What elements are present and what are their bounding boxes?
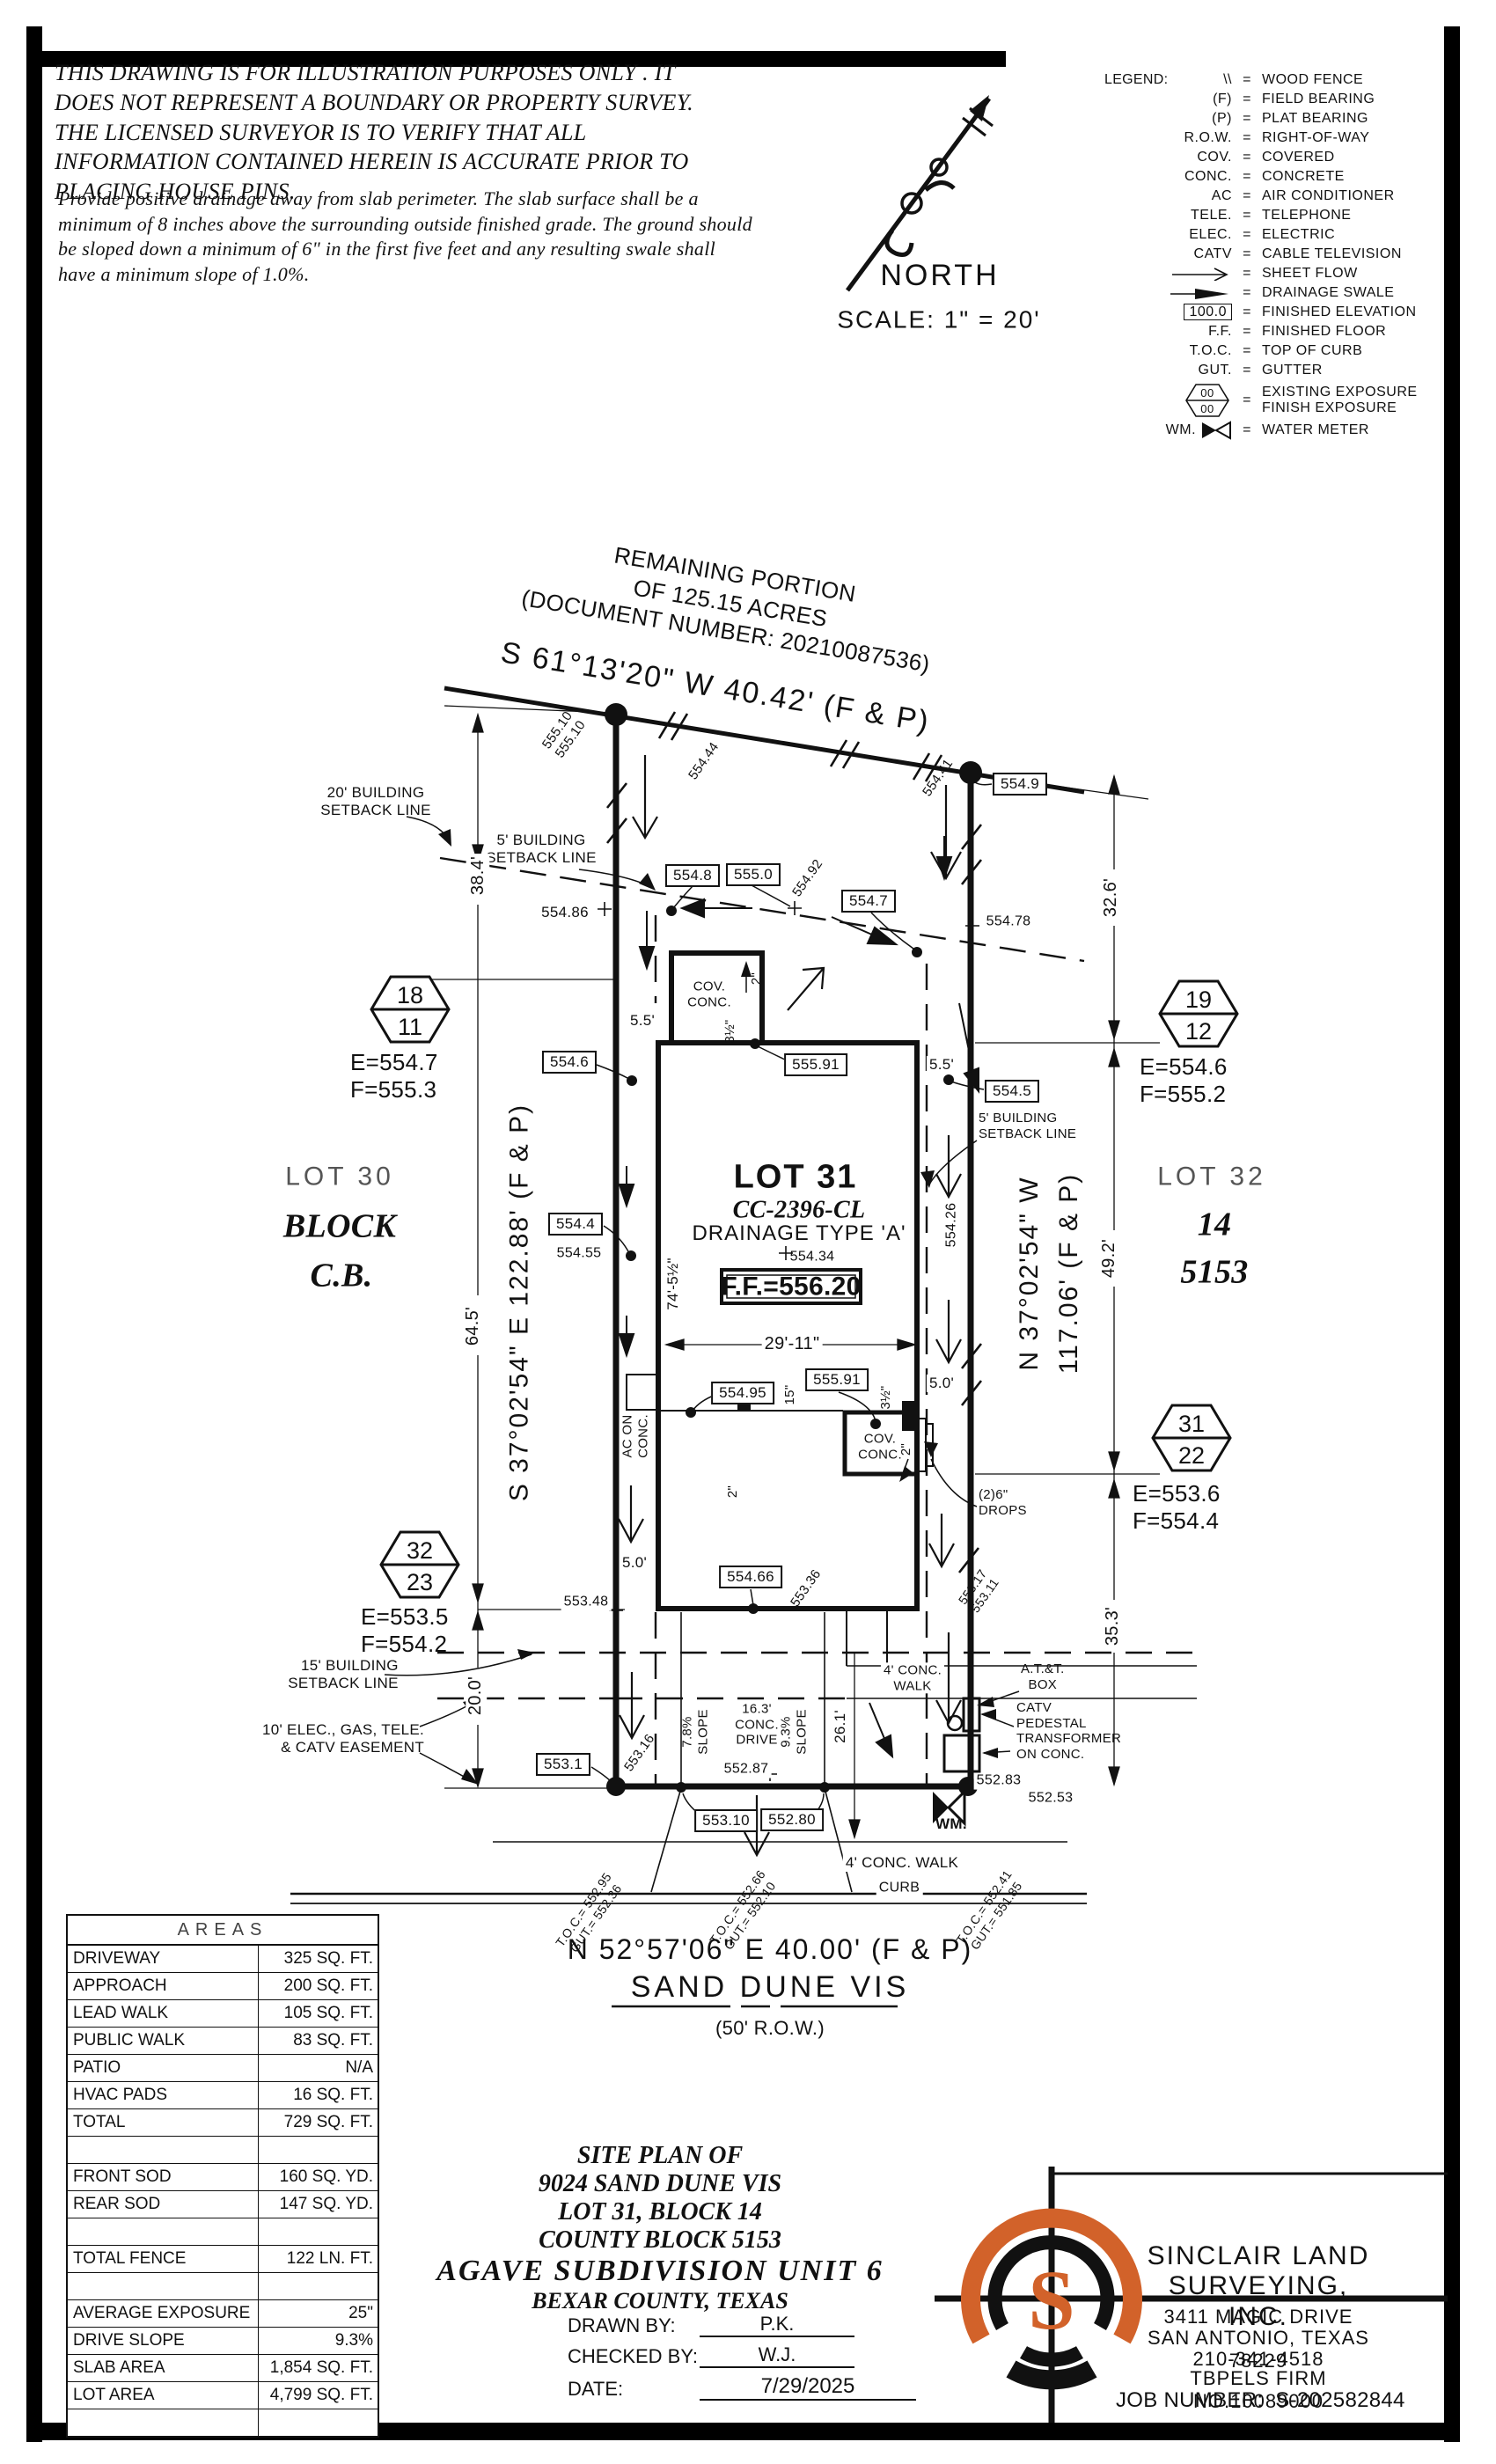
hexagon-19-12: 1912 xyxy=(1160,981,1237,1046)
row-label: FRONT SOD xyxy=(68,2164,259,2190)
dim-64-5: 64.5' xyxy=(463,1304,484,1348)
row-label xyxy=(68,2137,259,2163)
title-line: 9024 SAND DUNE VIS xyxy=(396,2172,924,2196)
finished-elev-552-80: 552.80 xyxy=(760,1808,824,1831)
hex-bottom: 11 xyxy=(398,1014,422,1040)
table-row: AVERAGE EXPOSURE25" xyxy=(68,2300,378,2328)
hex-bottom: 22 xyxy=(1178,1442,1205,1469)
dim-32-6: 32.6' xyxy=(1101,878,1122,917)
setback-15ft-label: 15' BUILDING SETBACK LINE xyxy=(288,1657,398,1692)
curb-label: CURB xyxy=(876,1881,923,1897)
block-14-label: 14 xyxy=(1198,1206,1232,1245)
row-label xyxy=(68,2273,259,2299)
water-meter-label: WM. xyxy=(935,1815,967,1833)
table-row: LEAD WALK105 SQ. FT. xyxy=(68,2000,378,2028)
bearing-street-line: N 52°57'06" E 40.00' (F & P) xyxy=(568,1933,973,1967)
hex-top: 32 xyxy=(407,1537,433,1564)
row-label: HVAC PADS xyxy=(68,2082,259,2108)
row-value xyxy=(259,2137,378,2163)
hex-top: 19 xyxy=(1185,986,1212,1013)
row-label: DRIVEWAY xyxy=(68,1946,259,1972)
areas-title: AREAS xyxy=(68,1916,378,1946)
table-row: TOTAL FENCE122 LN. FT. xyxy=(68,2246,378,2273)
row-label: APPROACH xyxy=(68,1973,259,1999)
row-value xyxy=(259,2409,378,2436)
date-value: 7/29/2025 xyxy=(700,2374,916,2401)
row-value: 1,854 SQ. FT. xyxy=(259,2355,378,2381)
hex-18-ef-values: E=554.7 F=555.3 xyxy=(350,1049,438,1103)
finished-elev-553-1: 553.1 xyxy=(536,1753,590,1776)
row-value xyxy=(259,2273,378,2299)
hex-19-ef-values: E=554.6 F=555.2 xyxy=(1140,1053,1228,1107)
finished-elev-553-10: 553.10 xyxy=(694,1809,758,1832)
finished-elev-555-91-lower: 555.91 xyxy=(805,1368,869,1391)
table-row: DRIVEWAY325 SQ. FT. xyxy=(68,1946,378,1973)
table-row xyxy=(68,2137,378,2164)
title-line: SITE PLAN OF xyxy=(396,2144,924,2168)
table-row: PUBLIC WALK83 SQ. FT. xyxy=(68,2028,378,2055)
dim-26-1: 26.1' xyxy=(832,1710,849,1743)
table-row: REAR SOD147 SQ. YD. xyxy=(68,2191,378,2218)
title-line: LOT 31, BLOCK 14 xyxy=(396,2200,924,2225)
hex-bottom: 23 xyxy=(407,1569,433,1595)
areas-table: AREAS DRIVEWAY325 SQ. FT. APPROACH200 SQ… xyxy=(66,1914,379,2438)
hex-top: 18 xyxy=(397,982,423,1008)
lot-30-label: LOT 30 xyxy=(285,1161,394,1192)
hex-32-ef-values: E=553.5 F=554.2 xyxy=(361,1603,449,1657)
drainage-type-label: DRAINAGE TYPE 'A' xyxy=(692,1221,906,1246)
drawn-by-value: P.K. xyxy=(700,2313,854,2337)
north-arrow-icon xyxy=(847,95,993,290)
job-number-label: JOB NUMBER: xyxy=(1116,2388,1263,2412)
att-box-label: A.T.&T. BOX xyxy=(1021,1661,1065,1692)
dim-5-5-left: 5.5' xyxy=(627,1012,657,1030)
bearing-west-line: N 37°02'54" W 117.06' (F & P) xyxy=(1009,1173,1089,1375)
row-value: 9.3% xyxy=(259,2328,378,2354)
spot-554-86: 554.86 xyxy=(539,904,591,921)
drawn-by-label: DRAWN BY: xyxy=(568,2314,700,2337)
row-label xyxy=(68,2218,259,2245)
row-value: 83 SQ. FT. xyxy=(259,2028,378,2054)
table-row: APPROACH200 SQ. FT. xyxy=(68,1973,378,2000)
table-row: TOTAL729 SQ. FT. xyxy=(68,2109,378,2137)
spot-554-78: 554.78 xyxy=(984,914,1034,931)
dim-5-0-right: 5.0' xyxy=(927,1375,957,1392)
finished-elev-555-0: 555.0 xyxy=(726,863,781,886)
dim-20-0: 20.0' xyxy=(466,1674,487,1718)
table-row xyxy=(68,2273,378,2300)
firm-address1: 3411 MAGIC DRIVE xyxy=(1144,2306,1373,2328)
block-label: BLOCK xyxy=(283,1207,396,1247)
leader-lines xyxy=(385,778,1019,1815)
drive-label: 16.3' CONC. DRIVE xyxy=(732,1701,781,1748)
cov-conc-rear-label: COV. CONC. xyxy=(855,1431,905,1462)
finished-elev-555-91-upper: 555.91 xyxy=(784,1053,847,1076)
row-value: 729 SQ. FT. xyxy=(259,2109,378,2136)
plan-code-label: CC-2396-CL xyxy=(733,1195,866,1224)
dim-74-5half: 74'-5½" xyxy=(664,1258,682,1310)
dim-29-11: 29'-11" xyxy=(762,1334,823,1355)
county-block-5153-label: 5153 xyxy=(1180,1253,1248,1293)
dim-49-2: 49.2' xyxy=(1099,1236,1120,1280)
dim-5-5-right: 5.5' xyxy=(927,1056,957,1074)
dim-2in-porch: 2" xyxy=(749,972,765,985)
walk-inner-label: 4' CONC. WALK xyxy=(881,1662,944,1693)
row-value: 16 SQ. FT. xyxy=(259,2082,378,2108)
row-label: TOTAL xyxy=(68,2109,259,2136)
finished-elev-554-7: 554.7 xyxy=(841,890,896,913)
finished-elev-554-95: 554.95 xyxy=(711,1382,774,1404)
dim-3-5in-left: 3½" xyxy=(722,1019,738,1043)
row-value: 200 SQ. FT. xyxy=(259,1973,378,1999)
title-block: SITE PLAN OF 9024 SAND DUNE VIS LOT 31, … xyxy=(396,2140,924,2316)
bearing-east-line: S 37°02'54" E 122.88' (F & P) xyxy=(503,1104,534,1501)
row-value: 25" xyxy=(259,2300,378,2327)
logo-s-letter: S xyxy=(1028,2253,1074,2347)
hexagon-32-23: 3223 xyxy=(381,1532,458,1597)
slope-left-label: 7.8% SLOPE xyxy=(679,1709,710,1755)
spot-552-87: 552.87 xyxy=(722,1762,772,1778)
setback-20ft-label: 20' BUILDING SETBACK LINE xyxy=(320,784,430,819)
finished-floor-label: F.F.=556.20 xyxy=(721,1271,861,1302)
finished-elev-554-4: 554.4 xyxy=(548,1213,603,1236)
setback-5ft-right-label: 5' BUILDING SETBACK LINE xyxy=(979,1111,1076,1141)
setback-5ft-left-label: 5' BUILDING SETBACK LINE xyxy=(486,832,596,867)
hexagon-18-11: 1811 xyxy=(371,977,449,1042)
title-county-line: BEXAR COUNTY, TEXAS xyxy=(396,2290,924,2313)
row-label: DRIVE SLOPE xyxy=(68,2328,259,2354)
row-label: PATIO xyxy=(68,2055,259,2081)
finished-elev-554-66: 554.66 xyxy=(719,1566,782,1588)
spot-552-83: 552.83 xyxy=(974,1773,1024,1790)
spot-554-55: 554.55 xyxy=(557,1246,602,1263)
hex-bottom: 12 xyxy=(1185,1018,1212,1045)
dim-15in: 15" xyxy=(782,1385,798,1405)
walk-street-label: 4' CONC. WALK xyxy=(843,1854,961,1872)
title-subdivision-line: AGAVE SUBDIVISION UNIT 6 xyxy=(396,2256,924,2286)
easement-label: 10' ELEC., GAS, TELE. & CATV EASEMENT xyxy=(262,1721,424,1756)
dim-2in-yard: 2" xyxy=(725,1485,741,1498)
row-label: LEAD WALK xyxy=(68,2000,259,2027)
dim-3-5in-right: 3½" xyxy=(878,1385,894,1409)
row-value: 4,799 SQ. FT. xyxy=(259,2382,378,2409)
finished-elev-554-8: 554.8 xyxy=(665,864,720,887)
row-label: AVERAGE EXPOSURE xyxy=(68,2300,259,2327)
row-label: REAR SOD xyxy=(68,2191,259,2218)
ac-on-conc-label: AC ON CONC. xyxy=(620,1414,650,1458)
row-label: PUBLIC WALK xyxy=(68,2028,259,2054)
row-label: TOTAL FENCE xyxy=(68,2246,259,2272)
spot-552-53: 552.53 xyxy=(1026,1791,1076,1808)
table-row: SLAB AREA1,854 SQ. FT. xyxy=(68,2355,378,2382)
row-label: LOT AREA xyxy=(68,2382,259,2409)
finished-elev-554-6: 554.6 xyxy=(542,1051,597,1074)
dim-35-3: 35.3' xyxy=(1103,1604,1124,1648)
table-row: HVAC PADS16 SQ. FT. xyxy=(68,2082,378,2109)
street-name-label: SAND DUNE VIS xyxy=(631,1969,910,2005)
table-row xyxy=(68,2409,378,2436)
date-label: DATE: xyxy=(568,2378,700,2401)
row-value: N/A xyxy=(259,2055,378,2081)
row-value: 122 LN. FT. xyxy=(259,2246,378,2272)
checked-by-label: CHECKED BY: xyxy=(568,2345,700,2368)
job-number-value: S-202582844 xyxy=(1275,2388,1404,2412)
table-row: FRONT SOD160 SQ. YD. xyxy=(68,2164,378,2191)
row-label xyxy=(68,2409,259,2436)
row-label: SLAB AREA xyxy=(68,2355,259,2381)
row-value: 147 SQ. YD. xyxy=(259,2191,378,2218)
row-value: 105 SQ. FT. xyxy=(259,2000,378,2027)
county-block-cb-label: C.B. xyxy=(311,1257,373,1296)
slope-right-label: 9.3% SLOPE xyxy=(778,1709,809,1755)
hex-top: 31 xyxy=(1178,1411,1205,1437)
hexagon-31-22: 3122 xyxy=(1153,1405,1230,1470)
table-row: DRIVE SLOPE9.3% xyxy=(68,2328,378,2355)
dim-2in-rear: 2" xyxy=(898,1443,914,1456)
signature-block: DRAWN BY:P.K. CHECKED BY:W.J. DATE:7/29/… xyxy=(568,2313,916,2407)
checked-by-value: W.J. xyxy=(700,2343,854,2368)
table-row xyxy=(68,2218,378,2246)
catv-pedestal-label: CATV PEDESTAL TRANSFORMER ON CONC. xyxy=(1016,1700,1121,1763)
lot-31-label: LOT 31 xyxy=(734,1158,858,1198)
finished-elev-554-9: 554.9 xyxy=(993,773,1047,796)
street-row-label: (50' R.O.W.) xyxy=(715,2017,825,2040)
row-value: 160 SQ. YD. xyxy=(259,2164,378,2190)
site-plan-sheet: { "disclaimer": { "para1": "THIS DRAWING… xyxy=(0,0,1496,2464)
dim-38-4: 38.4' xyxy=(468,854,489,898)
row-value xyxy=(259,2218,378,2245)
lot-32-label: LOT 32 xyxy=(1157,1161,1266,1192)
cov-conc-top-label: COV. CONC. xyxy=(685,979,734,1009)
table-row: PATION/A xyxy=(68,2055,378,2082)
dim-5-0-left: 5.0' xyxy=(620,1554,649,1572)
firm-name-line1: SINCLAIR LAND xyxy=(1144,2240,1373,2271)
job-number: JOB NUMBER: S-202582844 xyxy=(1116,2388,1405,2413)
row-value: 325 SQ. FT. xyxy=(259,1946,378,1972)
table-row: LOT AREA4,799 SQ. FT. xyxy=(68,2382,378,2409)
spot-553-48: 553.48 xyxy=(561,1595,612,1611)
spot-554-34: 554.34 xyxy=(790,1250,835,1266)
title-line: COUNTY BLOCK 5153 xyxy=(396,2228,924,2253)
hex-31-ef-values: E=553.6 F=554.4 xyxy=(1133,1480,1221,1534)
finished-elev-554-5: 554.5 xyxy=(985,1080,1039,1103)
drops-label: (2)6" DROPS xyxy=(979,1487,1027,1518)
spot-554-26: 554.26 xyxy=(944,1203,961,1248)
